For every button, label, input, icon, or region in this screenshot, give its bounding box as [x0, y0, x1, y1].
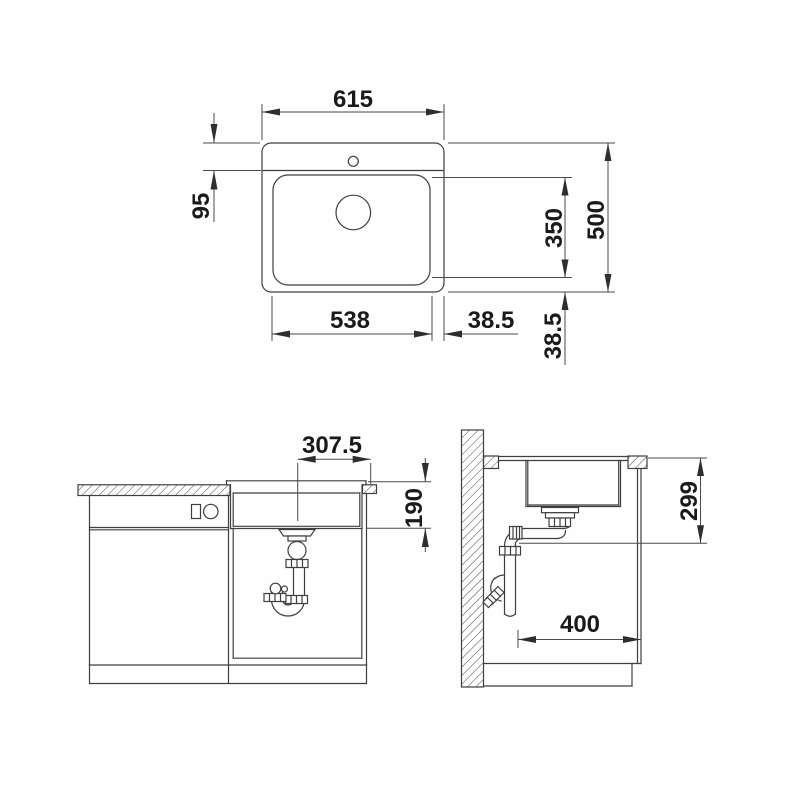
bowl-section: [526, 461, 621, 507]
cabinet-left: [90, 496, 229, 666]
drain-hole: [336, 195, 371, 230]
dim-label-350: 350: [541, 208, 568, 248]
wall-section: [462, 430, 484, 687]
worktop-right: [363, 485, 377, 494]
dim-label-95: 95: [188, 193, 215, 220]
faucet-hole: [348, 156, 358, 166]
worktop-left: [78, 485, 230, 496]
drain-flange-side: [542, 508, 579, 527]
dim-edge-right: 38.5: [444, 296, 518, 341]
dim-wall-to-front: 400: [518, 611, 641, 648]
dim-label-190: 190: [401, 488, 428, 528]
sink-outline: [262, 143, 444, 292]
trap-nut-left: [264, 594, 286, 602]
cabinet-sink: [233, 494, 366, 666]
appliance-dial-icon: [204, 504, 218, 518]
appliance-switch-icon: [192, 505, 201, 519]
side-section: 299 400: [462, 430, 708, 687]
dim-edge-bottom: 38.5: [540, 292, 569, 365]
dim-label-400: 400: [560, 611, 600, 638]
side-trap-nut: [500, 547, 521, 556]
technical-drawing: 615 95 350 500: [0, 0, 800, 800]
worktop-side-left: [484, 456, 499, 469]
dim-label-299: 299: [676, 481, 703, 521]
front-elevation: 307.5 190: [78, 432, 431, 684]
dim-rim-to-bowl: 95: [188, 113, 261, 222]
drain-flange-front: [279, 530, 315, 537]
dim-bowl-width: 538: [272, 296, 432, 341]
dim-label-500: 500: [583, 200, 610, 240]
dim-label-38.5-v: 38.5: [540, 313, 567, 360]
plinth-front: [90, 665, 367, 684]
trap-nut-right: [286, 596, 308, 604]
side-elbow-collar: [510, 527, 523, 540]
wall-outlet-connector: [483, 587, 504, 608]
dim-outlet-height: 299: [519, 458, 707, 543]
dim-label-38.5-h: 38.5: [468, 307, 515, 334]
plan-view: 615 95 350 500: [188, 86, 615, 365]
trap-nut-top: [286, 560, 308, 568]
dim-label-538: 538: [330, 307, 370, 334]
dim-label-307.5: 307.5: [302, 432, 362, 459]
drawing-canvas: 615 95 350 500: [0, 0, 800, 800]
dim-bowl-length: 350: [432, 178, 572, 278]
front-drain-trap: [264, 530, 315, 617]
cabinet-side: [484, 469, 642, 687]
worktop-side-right: [628, 456, 647, 469]
dim-overall-depth: 500: [448, 143, 615, 292]
side-drain-trap: [483, 508, 579, 617]
dim-label-615: 615: [333, 86, 373, 113]
dim-bowl-depth: 190: [367, 458, 432, 552]
dim-overall-width: 615: [262, 86, 444, 140]
